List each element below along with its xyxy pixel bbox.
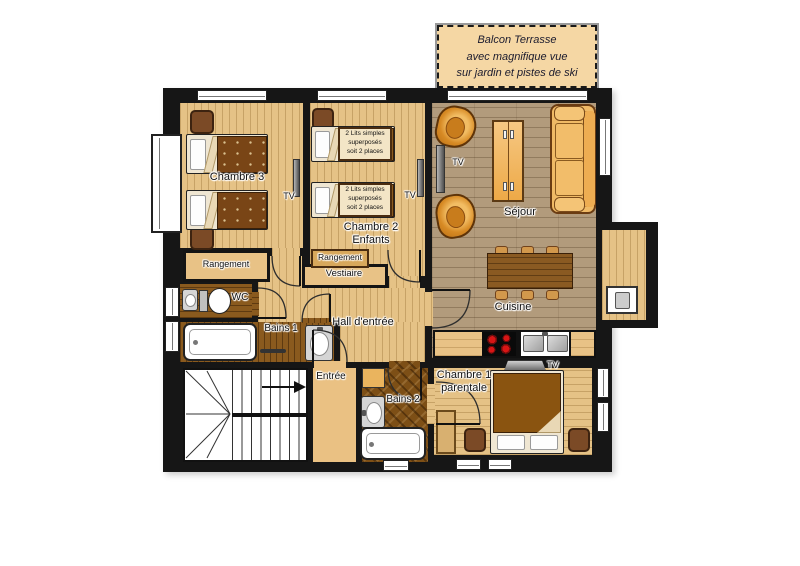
window (599, 118, 611, 176)
window-balcony-door (447, 90, 588, 101)
stairs-flight-up (232, 370, 306, 413)
counter-worktop (435, 332, 482, 356)
balcony-text-line3: sur jardin et pistes de ski (439, 65, 595, 82)
cabinet-handle (510, 130, 514, 139)
doorway-bains2 (389, 361, 420, 369)
window (597, 368, 609, 398)
nightstand (568, 428, 590, 452)
blanket (217, 192, 267, 229)
stairs-flight-down (232, 417, 306, 460)
sofa (550, 104, 596, 214)
bunk-text-line3: soit 2 places (340, 148, 390, 157)
bathtub-bains1 (183, 323, 257, 361)
faucet (317, 327, 323, 331)
pillow (530, 435, 558, 450)
dining-chair (521, 290, 534, 300)
window (317, 90, 387, 101)
window (488, 459, 512, 470)
window (165, 321, 179, 352)
pillow (190, 195, 206, 226)
label-tv: TV (404, 190, 416, 200)
label-rangement-chambre2: Rangement (318, 252, 362, 262)
label-entree: Entrée (316, 371, 345, 382)
doorway-bains1 (302, 318, 330, 323)
bains2-washbasin (361, 396, 385, 428)
label-rangement-left: Rangement (203, 259, 250, 269)
bunk-text-line2: superposés (340, 195, 390, 204)
pillow (190, 139, 206, 170)
label-chambre-1-line1: Chambre 1 (437, 369, 491, 381)
bathtub-bains2 (360, 427, 426, 460)
single-bed (186, 190, 268, 230)
label-tv: TV (547, 360, 559, 370)
label-chambre-3: Chambre 3 (210, 171, 264, 183)
nightstand (464, 428, 486, 452)
tv-sejour (436, 145, 445, 193)
washbasin-bowl (310, 332, 329, 356)
nightstand (190, 110, 214, 134)
towel-bar (260, 349, 286, 353)
toilet-tank (199, 290, 208, 312)
single-bed (186, 134, 268, 174)
dining-chair (495, 290, 508, 300)
sofa-arm-bottom (554, 197, 585, 212)
label-bains-2: Bains 2 (386, 394, 419, 405)
dining-table (487, 253, 573, 289)
blanket (217, 136, 267, 173)
label-chambre-2-line2: Enfants (352, 234, 389, 246)
label-chambre-1-line2: parentale (441, 382, 487, 394)
label-tv: TV (283, 191, 295, 201)
cabinet-handle (503, 182, 507, 191)
sink-basin (547, 335, 568, 352)
bains2-cabinet (362, 368, 385, 388)
wc-washbasin (182, 289, 198, 311)
sofa-cushion (555, 123, 584, 159)
bunk-text-line3: soit 2 places (340, 204, 390, 213)
balcony-text-line1: Balcon Terrasse (439, 32, 595, 49)
faucet (362, 410, 366, 416)
doorway-wc (252, 292, 259, 316)
window (383, 460, 409, 471)
sink-unit (519, 332, 571, 356)
window (456, 459, 481, 470)
label-cuisine: Cuisine (495, 301, 532, 313)
doorway-entree (314, 361, 346, 369)
window (165, 287, 179, 317)
toilet-bowl (208, 288, 231, 314)
doorway-chambre1 (427, 384, 435, 424)
counter-worktop (571, 332, 594, 356)
bunk-text-line1: 2 Lits simples (340, 130, 390, 139)
doorway-chambre3 (272, 248, 300, 257)
label-bains-1: Bains 1 (264, 323, 297, 334)
bunk-text-line1: 2 Lits simples (340, 186, 390, 195)
dining-chair (546, 290, 559, 300)
cooktop (482, 332, 516, 356)
label-chambre-2-line1: Chambre 2 (344, 221, 398, 233)
label-hall: Hall d'entrée (332, 316, 393, 328)
cabinet-handle (503, 130, 507, 139)
bunk-bed-plaque: 2 Lits simples superposés soit 2 places (338, 183, 392, 217)
sofa-back (583, 111, 595, 207)
bay-window-line (159, 138, 160, 229)
sofa-cushion (555, 160, 584, 196)
balcony-text-line2: avec magnifique vue (439, 49, 595, 66)
cabinet-divider (508, 122, 509, 200)
bunk-text-line2: superposés (340, 139, 390, 148)
doorway-cuisine (424, 292, 433, 326)
toilet (199, 288, 231, 314)
pillow (497, 435, 525, 450)
room-entree (313, 368, 356, 462)
doorway-chambre2 (389, 276, 420, 288)
floor-plan: Balcon Terrasse avec magnifique vue sur … (0, 0, 800, 566)
room-hall-lower (340, 322, 425, 362)
label-tv: TV (452, 157, 464, 167)
window (197, 90, 267, 101)
balcony-banner: Balcon Terrasse avec magnifique vue sur … (437, 25, 597, 88)
appliance-door (615, 292, 630, 309)
wardrobe (436, 410, 456, 454)
washbasin-bowl (185, 294, 196, 307)
sink-basin (523, 335, 544, 352)
bay-window (151, 134, 182, 233)
washbasin-bowl (366, 402, 382, 424)
appliance (606, 286, 638, 314)
stairwell (183, 368, 308, 462)
faucet (542, 332, 548, 336)
bains1-washbasin (305, 325, 333, 361)
label-sejour: Séjour (504, 206, 536, 218)
window (597, 402, 609, 432)
cabinet-handle (510, 182, 514, 191)
double-bed (490, 370, 564, 454)
label-vestiaire: Vestiaire (326, 268, 362, 279)
cabinet (492, 120, 524, 202)
tv-chambre2 (417, 159, 424, 197)
label-wc: WC (232, 292, 249, 303)
kitchen-counter (433, 330, 596, 358)
bunk-bed-plaque: 2 Lits simples superposés soit 2 places (338, 127, 392, 161)
sofa-arm-top (554, 106, 585, 121)
